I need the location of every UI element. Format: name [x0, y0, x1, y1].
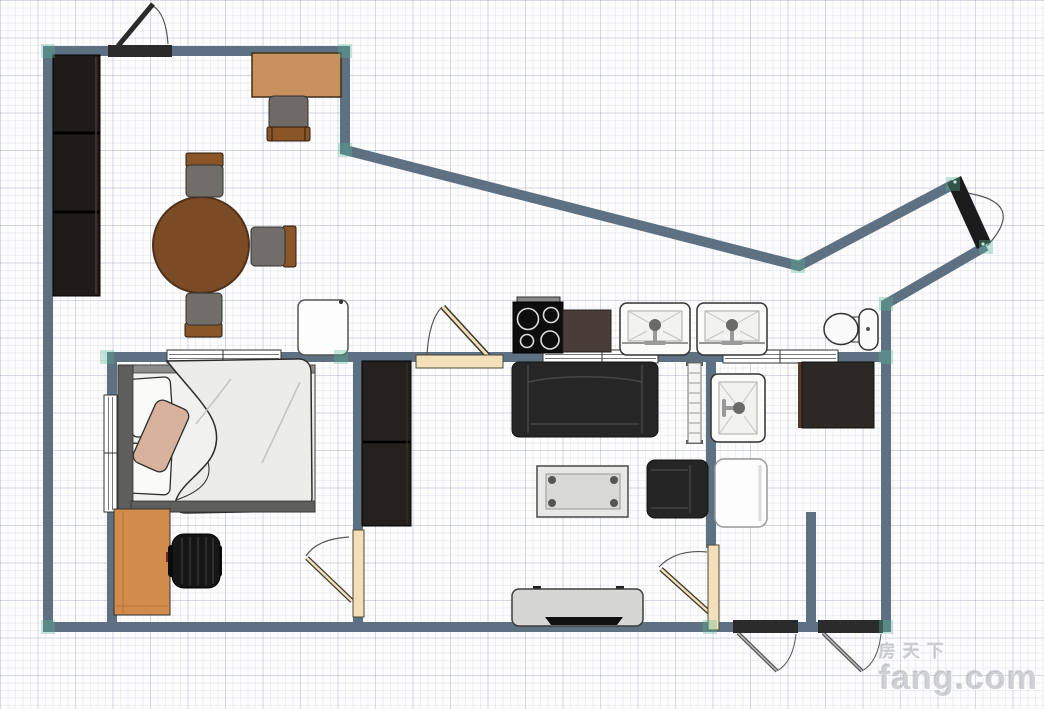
- floorplan-svg: [0, 0, 1044, 709]
- dining-chair-north[interactable]: [186, 153, 223, 197]
- window-bedroom-left[interactable]: [104, 395, 117, 512]
- toilet[interactable]: [824, 309, 878, 350]
- desk[interactable]: [252, 53, 341, 97]
- living-door[interactable]: [659, 545, 719, 630]
- dining-table[interactable]: [153, 197, 249, 293]
- floorplan-canvas: 房天下 fang.com: [0, 0, 1044, 709]
- kitchen-counter[interactable]: [563, 310, 611, 352]
- bed[interactable]: [118, 359, 315, 513]
- entry-door-top[interactable]: [108, 4, 172, 57]
- dining-chair-east[interactable]: [251, 226, 296, 267]
- sofa[interactable]: [512, 362, 658, 437]
- stove[interactable]: [513, 297, 563, 353]
- bedroom-desk[interactable]: [114, 509, 170, 615]
- dining-chair-south[interactable]: [185, 293, 222, 337]
- tall-wardrobe[interactable]: [53, 55, 100, 296]
- balcony-door-1[interactable]: [733, 620, 798, 671]
- radiator[interactable]: [686, 362, 703, 444]
- kitchen-sink-2[interactable]: [697, 303, 767, 355]
- tv: [545, 617, 623, 625]
- office-chair[interactable]: [166, 534, 222, 588]
- coffee-table[interactable]: [537, 466, 628, 517]
- shower-tray[interactable]: [715, 459, 767, 527]
- bedroom-door[interactable]: [306, 530, 364, 617]
- bathroom-cabinet[interactable]: [798, 362, 874, 428]
- mini-fridge[interactable]: [298, 300, 348, 355]
- kitchen-sink-1[interactable]: [620, 303, 690, 355]
- balcony-door-2[interactable]: [818, 620, 883, 671]
- kitchen-door[interactable]: [416, 307, 503, 368]
- tv-stand[interactable]: [512, 586, 643, 626]
- desk-chair[interactable]: [267, 96, 310, 141]
- armchair[interactable]: [647, 460, 708, 518]
- hall-wardrobe[interactable]: [362, 361, 411, 526]
- bathroom-basin[interactable]: [711, 374, 765, 442]
